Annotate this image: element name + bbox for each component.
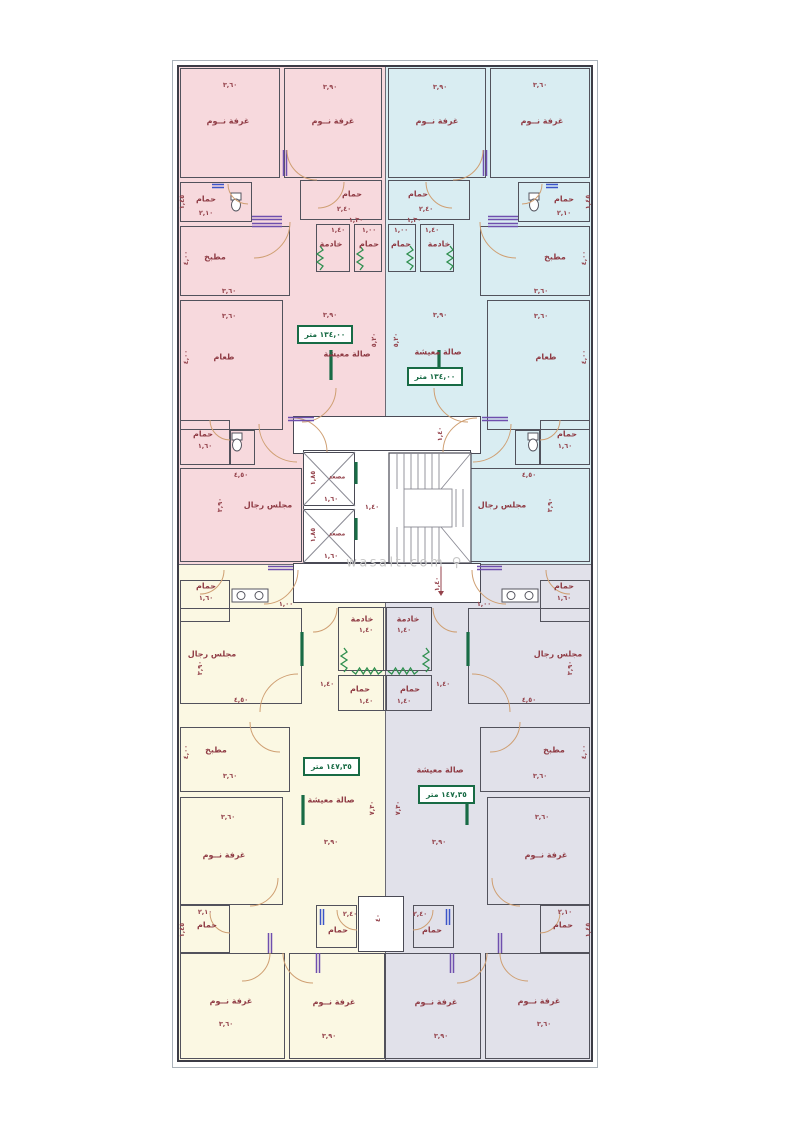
room-label: مجلس رجال: [244, 501, 292, 510]
dimension-label: ١,٨٥: [309, 528, 317, 542]
room-label: مجلس رجال: [188, 650, 236, 659]
dimension-label: ٣,٩٠: [323, 83, 337, 91]
dimension-label: ٣,٩٠: [433, 311, 447, 319]
dimension-label: ١,٦٠: [558, 442, 572, 450]
room-label: مطبخ: [204, 253, 226, 262]
room-label: مطبخ: [544, 253, 566, 262]
area-badge: ١٣٤,٠٠ متر: [407, 367, 463, 386]
room-label: خادمة: [320, 240, 343, 249]
dimension-label: ١,٨٥: [309, 471, 317, 485]
dimension-label: ٣,٩٠: [433, 83, 447, 91]
bathroom: [180, 182, 252, 222]
dimension-label: ١,٣٠: [407, 216, 421, 224]
room-label: حمام: [422, 926, 442, 935]
dimension-label: ٣,٦٠: [221, 813, 235, 821]
room-label: مطبخ: [543, 746, 565, 755]
dimension-label: ٤,٠٠: [182, 745, 190, 759]
room-label: غرفة نــوم: [207, 117, 250, 126]
bathroom: [388, 180, 470, 220]
floor-plan: ٣,٦٠غرفة نــوم٣,٩٠غرفة نــوم١,٤٥حمام٢,١٠…: [0, 0, 800, 1131]
dimension-label: ٢,٤٠: [337, 205, 351, 213]
dimension-label: ٢,١٠: [558, 908, 572, 916]
kitchen: [480, 727, 590, 792]
dimension-label: ٣,٩٠: [566, 661, 574, 675]
dimension-label: ٢,١٠: [199, 209, 213, 217]
dimension-label: ٤,٥٠: [234, 471, 248, 479]
dimension-label: ٤,٥٠: [234, 696, 248, 704]
area-badge: ١٣٤,٠٠ متر: [297, 325, 353, 344]
room-label: مجلس رجال: [534, 650, 582, 659]
dimension-label: ٣,٦٠: [223, 81, 237, 89]
dimension-label: ٣,٦٠: [533, 81, 547, 89]
room-label: حمام: [391, 240, 411, 249]
dimension-label: ٣,٩٠: [323, 311, 337, 319]
dimension-label: ٣,٩٠: [432, 838, 446, 846]
dimension-label: ١,٤٥: [584, 195, 592, 209]
dimension-label: ١,٦٠: [198, 442, 212, 450]
dimension-label: ١,٤٠: [433, 577, 441, 591]
area-badge: ١٤٧,٣٥ متر: [418, 785, 475, 804]
dimension-label: ٣,٦٠: [222, 312, 236, 320]
room-label: حمام: [342, 190, 362, 199]
room-label: حمام: [197, 921, 217, 930]
dimension-label: ٣,٦٠: [533, 772, 547, 780]
room-label: مطبخ: [205, 746, 227, 755]
dimension-label: ١,٤٠: [436, 427, 444, 441]
dimension-label: ٢,٤٠: [413, 910, 427, 918]
dimension-label: ٣,٩٠: [324, 838, 338, 846]
dimension-label: ١,٤٠: [359, 697, 373, 705]
room-label: حمام: [193, 430, 213, 439]
dimension-label: ١,٤٥: [178, 923, 186, 937]
dimension-label: ٣,٩٠: [434, 1032, 448, 1040]
wc-alcove: [230, 430, 255, 465]
bedroom: [180, 953, 285, 1059]
room-label: صالة معيشة: [323, 350, 370, 359]
dimension-label: ٥,٢٠: [392, 333, 400, 347]
room-label: طعام: [214, 353, 235, 362]
room-label: غرفة نــوم: [416, 117, 459, 126]
dimension-label: ٧,٣٠: [394, 801, 402, 815]
dimension-label: ١,٤٠: [359, 626, 373, 634]
majlis: [180, 468, 302, 562]
dimension-label: ٣,٦٠: [223, 772, 237, 780]
room-label: صالة معيشة: [414, 348, 461, 357]
majlis: [468, 468, 590, 562]
dimension-label: ٣,٩٠: [196, 661, 204, 675]
dimension-label: ٥,٢٠: [370, 333, 378, 347]
dimension-label: ٤,٠٠: [580, 251, 588, 265]
dimension-label: ١,٤٠: [397, 697, 411, 705]
room-label: طعام: [536, 353, 557, 362]
dimension-label: ١,٠٠: [477, 600, 491, 608]
bathroom: [300, 180, 382, 220]
watermark-text: wasalt.com: [346, 556, 445, 571]
dimension-label: ٣,٦٠: [535, 813, 549, 821]
room-label: حمام: [359, 240, 379, 249]
dimension-label: ١,٦٠: [557, 594, 571, 602]
dimension-label: ١,٤٠: [436, 680, 450, 688]
dimension-label: ١,٤٥: [178, 195, 186, 209]
dimension-label: ١,٤٠: [320, 680, 334, 688]
dimension-label: ١,٤٠: [397, 626, 411, 634]
room-label: غرفة نــوم: [415, 998, 458, 1007]
dimension-label: ٤,٥٠: [522, 696, 536, 704]
dimension-label: ٢,١٠: [557, 209, 571, 217]
room-label: حمام: [400, 685, 420, 694]
dimension-label: ٣,٦٠: [222, 287, 236, 295]
kitchen: [180, 727, 290, 792]
dimension-label: ١,٠٠: [362, 226, 376, 234]
room-label: صالة معيشة: [416, 766, 463, 775]
room-label: غرفة نــوم: [518, 997, 561, 1006]
room-label: مصعد: [329, 531, 345, 538]
dimension-label: ٤,٠٠: [580, 350, 588, 364]
dimension-label: ١,٤٠: [425, 226, 439, 234]
room-label: مجلس رجال: [478, 501, 526, 510]
dimension-label: ٤,٠٠: [182, 350, 190, 364]
room-label: غرفة نــوم: [203, 851, 246, 860]
room-label: خادمة: [397, 615, 420, 624]
watermark: wasalt.com ⚲: [346, 556, 464, 571]
room-label: غرفة نــوم: [312, 117, 355, 126]
dimension-label: ٢,٤٠: [343, 910, 357, 918]
area-badge: ١٤٧,٣٥ متر: [303, 757, 360, 776]
room-label: غرفة نــوم: [313, 998, 356, 1007]
dimension-label: ١,٣٠: [349, 216, 363, 224]
room-label: غرفة نــوم: [521, 117, 564, 126]
location-pin-icon: ⚲: [452, 556, 464, 571]
dimension-label: ١,٤٠: [331, 226, 345, 234]
dimension-label: ٣,٩٠: [546, 498, 554, 512]
kitchen: [180, 226, 290, 296]
dimension-label: ٤,٥٠: [522, 471, 536, 479]
room-label: حمام: [557, 430, 577, 439]
room-label: حمام: [328, 926, 348, 935]
room-label: صالة معيشة: [307, 796, 354, 805]
dimension-label: ٤,٠٠: [182, 251, 190, 265]
dimension-label: ٣,٦٠: [534, 287, 548, 295]
room-label: حمام: [196, 582, 216, 591]
dimension-label: ٣,٩٠: [322, 1032, 336, 1040]
room-label: حمام: [350, 685, 370, 694]
dimension-label: ١,٠٠: [279, 600, 293, 608]
dimension-label: ٧,٣٠: [368, 801, 376, 815]
dimension-label: ٤,٠٠: [580, 745, 588, 759]
dimension-label: ١,٦٠: [324, 495, 338, 503]
dimension-label: ١,٦٠: [199, 594, 213, 602]
room-label: مصعد: [329, 474, 345, 481]
dimension-label: ٢,١٠: [198, 908, 212, 916]
room-label: غرفة نــوم: [210, 997, 253, 1006]
bedroom: [485, 953, 590, 1059]
dimension-label: ٢,٤٠: [419, 205, 433, 213]
room-label: حمام: [553, 921, 573, 930]
dimension-label: ١,٤٥: [584, 923, 592, 937]
room-label: خادمة: [428, 240, 451, 249]
dimension-label: ٣,٦٠: [537, 1020, 551, 1028]
dimension-label: ٣,٦٠: [534, 312, 548, 320]
room-label: حمام: [554, 582, 574, 591]
room-label: حمام: [196, 195, 216, 204]
room-label: غرفة نــوم: [525, 851, 568, 860]
room-label: حمام: [408, 190, 428, 199]
dimension-label: ١,٦٠: [324, 552, 338, 560]
dimension-label: ٤٠: [374, 914, 382, 922]
dimension-label: ٣,٩٠: [216, 498, 224, 512]
wc-alcove: [515, 430, 540, 465]
dimension-label: ١,٤٠: [365, 503, 379, 511]
dimension-label: ٣,٦٠: [219, 1020, 233, 1028]
kitchen: [480, 226, 590, 296]
dimension-label: ١,٠٠: [394, 226, 408, 234]
room-label: حمام: [554, 195, 574, 204]
room-label: خادمة: [351, 615, 374, 624]
